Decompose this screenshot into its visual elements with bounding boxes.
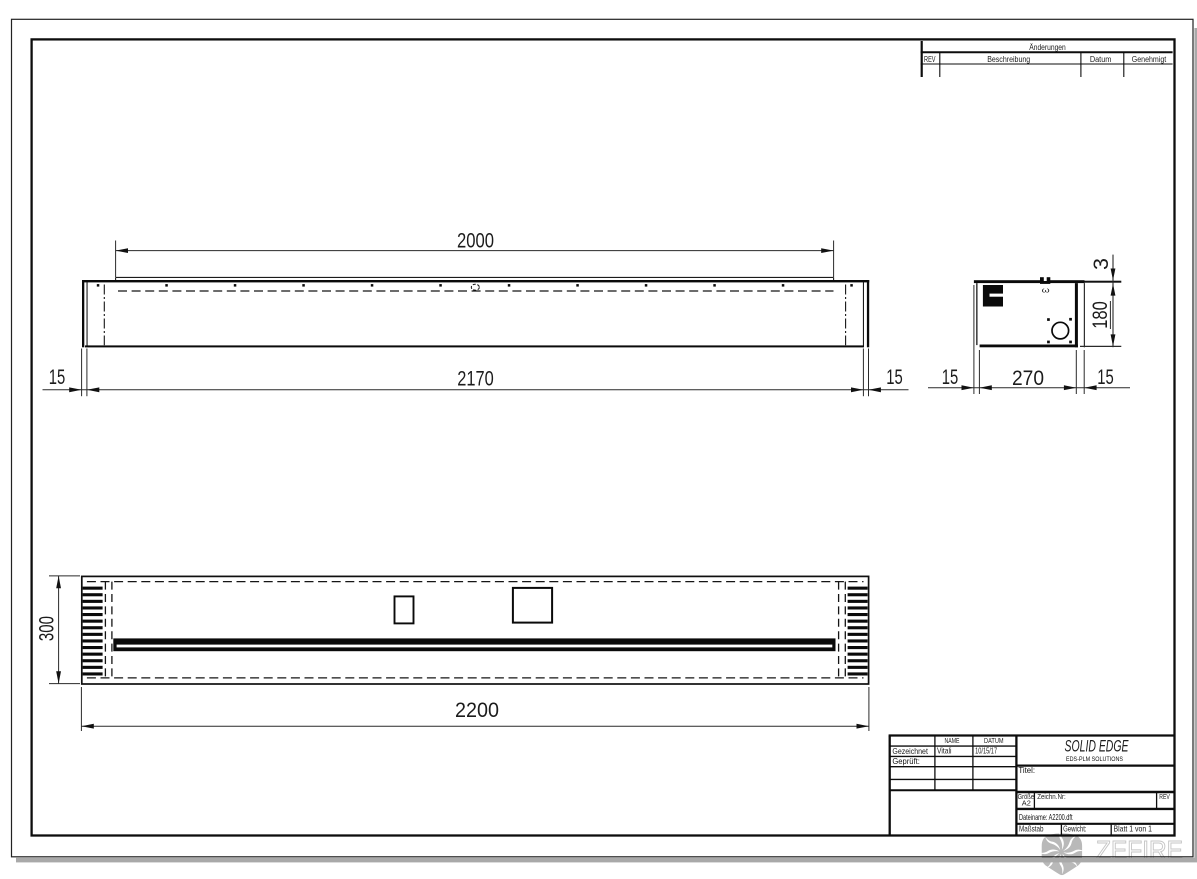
svg-text:2170: 2170: [457, 367, 494, 391]
svg-text:Änderungen: Änderungen: [1029, 42, 1066, 52]
svg-text:REV: REV: [1159, 792, 1170, 801]
svg-text:A2: A2: [1022, 799, 1031, 808]
svg-text:Zeichn.Nr:: Zeichn.Nr:: [1037, 792, 1066, 801]
svg-text:10/15/17: 10/15/17: [975, 746, 997, 755]
svg-text:Vitali: Vitali: [937, 746, 952, 755]
svg-text:EDS-PLM SOLUTIONS: EDS-PLM SOLUTIONS: [1066, 756, 1123, 763]
svg-text:180: 180: [1088, 301, 1112, 329]
svg-text:15: 15: [886, 365, 903, 389]
svg-text:ω: ω: [1042, 286, 1050, 295]
svg-text:DATUM: DATUM: [984, 736, 1004, 745]
svg-text:Blatt 1 von 1: Blatt 1 von 1: [1114, 824, 1153, 833]
svg-text:NAME: NAME: [945, 736, 960, 745]
svg-text:Gezeichnet: Gezeichnet: [892, 747, 928, 756]
svg-text:Gewicht:: Gewicht:: [1063, 824, 1087, 833]
svg-text:Maßstab: Maßstab: [1019, 824, 1044, 833]
svg-text:SOLID EDGE: SOLID EDGE: [1065, 737, 1130, 755]
svg-text:2000: 2000: [457, 228, 494, 252]
svg-text:15: 15: [942, 365, 959, 389]
svg-text:Dateiname: A2200.dft: Dateiname: A2200.dft: [1019, 813, 1073, 822]
svg-text:Geprüft:: Geprüft:: [892, 757, 920, 766]
svg-text:2200: 2200: [455, 698, 499, 722]
svg-text:270: 270: [1012, 366, 1044, 390]
svg-text:15: 15: [1097, 365, 1114, 389]
svg-text:300: 300: [35, 616, 59, 641]
svg-text:15: 15: [49, 365, 66, 389]
svg-text:Beschreibung: Beschreibung: [987, 55, 1030, 64]
svg-text:Titel:: Titel:: [1018, 766, 1035, 775]
svg-text:Genehmigt: Genehmigt: [1132, 55, 1167, 64]
svg-text:REV: REV: [924, 55, 936, 64]
svg-text:Datum: Datum: [1090, 55, 1112, 64]
svg-text:3: 3: [1089, 258, 1113, 270]
